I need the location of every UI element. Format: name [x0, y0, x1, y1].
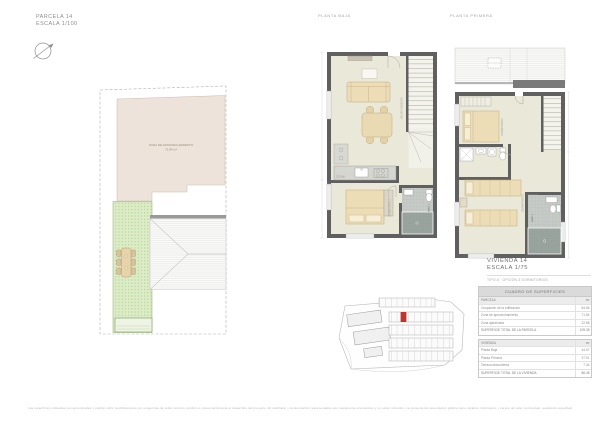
row-label: Terraza descubierta — [479, 362, 575, 369]
table-row: VIVIENDA m² — [479, 340, 591, 348]
pp-bathroom2 — [528, 195, 561, 254]
dormitorio3-label: DORMITORIO 3 — [522, 194, 525, 212]
table-row: Terraza descubierta 7.34 — [479, 362, 591, 370]
row-label: Zona ajardinada — [479, 320, 575, 327]
dwelling-title-block: VIVIENDA 14 ESCALA 1/75 TIPO A · OPCIÓN … — [487, 258, 593, 282]
pp-stairs — [544, 96, 562, 150]
sink — [404, 190, 413, 196]
garden-strip — [113, 202, 152, 333]
site-key-plan — [333, 292, 473, 392]
toilet — [550, 205, 556, 213]
salon-label: SALÓN-COMEDOR — [401, 97, 404, 119]
row-label: PARCELA — [479, 297, 575, 304]
row-value: m² — [575, 297, 591, 304]
roof-plan — [150, 215, 226, 290]
dwelling-title: VIVIENDA 14 — [487, 258, 593, 265]
table-row: Planta Baja 44.67 — [479, 347, 591, 355]
pb-coffee-table — [362, 69, 377, 79]
surfaces-table-title: CUADRO DE SUPERFICIES — [478, 286, 592, 297]
row-value: 71.84 — [575, 312, 591, 319]
parcel-scale: ESCALA 1/100 — [36, 21, 78, 28]
row-label: VIVIENDA — [479, 340, 575, 347]
dwelling-subtitle: TIPO A · OPCIÓN 3 DORMITORIOS — [487, 278, 593, 282]
floor-plan-planta-baja: SALÓN-COMEDOR COCINA DORMITORIO 1 BAÑO 1 — [318, 36, 443, 241]
pp-double-bed — [463, 111, 499, 142]
table-row: Planta Primera 37.91 — [479, 355, 591, 363]
planter — [115, 318, 152, 332]
row-value: 7.34 — [575, 362, 591, 369]
row-label: SUPERFICIE TOTAL DE LA VIVIENDA — [479, 370, 575, 378]
dormitorio1-label: DORMITORIO 1 — [389, 199, 392, 217]
row-label: Zona de aprovechamiento — [479, 312, 575, 319]
parcel-title: PARCELA 14 — [36, 14, 78, 21]
pp-dimension-line — [567, 92, 570, 258]
surfaces-dwelling-group: VIVIENDA m² Planta Baja 44.67 Planta Pri… — [478, 339, 592, 379]
cocina-label: COCINA — [336, 176, 345, 179]
planta-primera-label: PLANTA PRIMERA — [450, 13, 493, 18]
parcel-title-block: PARCELA 14 ESCALA 1/100 — [36, 14, 78, 27]
table-row: Zona de aprovechamiento 71.84 — [479, 312, 591, 320]
table-row: Ocupación de la edificación 84.86 — [479, 305, 591, 313]
highlighted-parcel-14 — [401, 312, 407, 322]
dormitorio2-label: DORMITORIO 2 — [501, 118, 504, 136]
table-row: PARCELA m² — [479, 297, 591, 305]
row-label: SUPERFICIE TOTAL DE LA PARCELA — [479, 327, 575, 335]
row-label: Planta Primera — [479, 355, 575, 362]
zone-label: ZONA DE APROVECHAMIENTO — [149, 143, 194, 147]
row-value: 22.88 — [575, 320, 591, 327]
footer-disclaimer: Las superficies indicadas son aproximada… — [28, 406, 572, 410]
divider — [487, 275, 591, 276]
table-row: SUPERFICIE TOTAL DE LA PARCELA 105.35 — [479, 327, 591, 335]
floor-plan-planta-primera: DORMITORIO 2 DORMITORIO 3 BAÑO 2 — [450, 34, 572, 269]
table-row: Zona ajardinada 22.88 — [479, 320, 591, 328]
pb-tv-unit — [348, 56, 372, 61]
nightstand — [460, 198, 467, 207]
pp-roof-terrace — [455, 48, 565, 88]
zone-area: 71.84 m² — [165, 148, 177, 152]
aprovechamiento-zone: ZONA DE APROVECHAMIENTO 71.84 m² — [117, 96, 225, 202]
bano1-label: BAÑO 1 — [428, 203, 431, 212]
pp-wardrobe — [461, 97, 491, 106]
plan-sheet: PARCELA 14 ESCALA 1/100 PLANTA BAJA PLAN… — [0, 0, 600, 424]
pb-sofa — [347, 82, 390, 102]
garden-table-set — [117, 248, 136, 277]
dwelling-scale: ESCALA 1/75 — [487, 265, 593, 272]
row-value: 44.67 — [575, 347, 591, 354]
row-value: 105.35 — [575, 327, 591, 335]
table-row: SUPERFICIE TOTAL DE LA VIVIENDA 86.45 — [479, 370, 591, 378]
north-compass-icon — [30, 38, 56, 64]
row-value: m² — [575, 340, 591, 347]
sink — [546, 197, 557, 203]
pb-bed — [346, 190, 384, 224]
row-value: 37.91 — [575, 355, 591, 362]
row-value: 86.45 — [575, 370, 591, 378]
pb-dimension-line — [321, 52, 324, 238]
row-label: Ocupación de la edificación — [479, 305, 575, 312]
surfaces-parcel-group: PARCELA m² Ocupación de la edificación 8… — [478, 297, 592, 336]
parcel-site-plan: ZONA DE APROVECHAMIENTO 71.84 m² — [95, 80, 235, 340]
planta-baja-label: PLANTA BAJA — [318, 13, 351, 18]
toilet — [426, 194, 432, 202]
surfaces-table: CUADRO DE SUPERFICIES PARCELA m² Ocupaci… — [478, 286, 592, 378]
row-label: Planta Baja — [479, 347, 575, 354]
bano2-label: BAÑO 2 — [531, 213, 534, 222]
row-value: 84.86 — [575, 305, 591, 312]
